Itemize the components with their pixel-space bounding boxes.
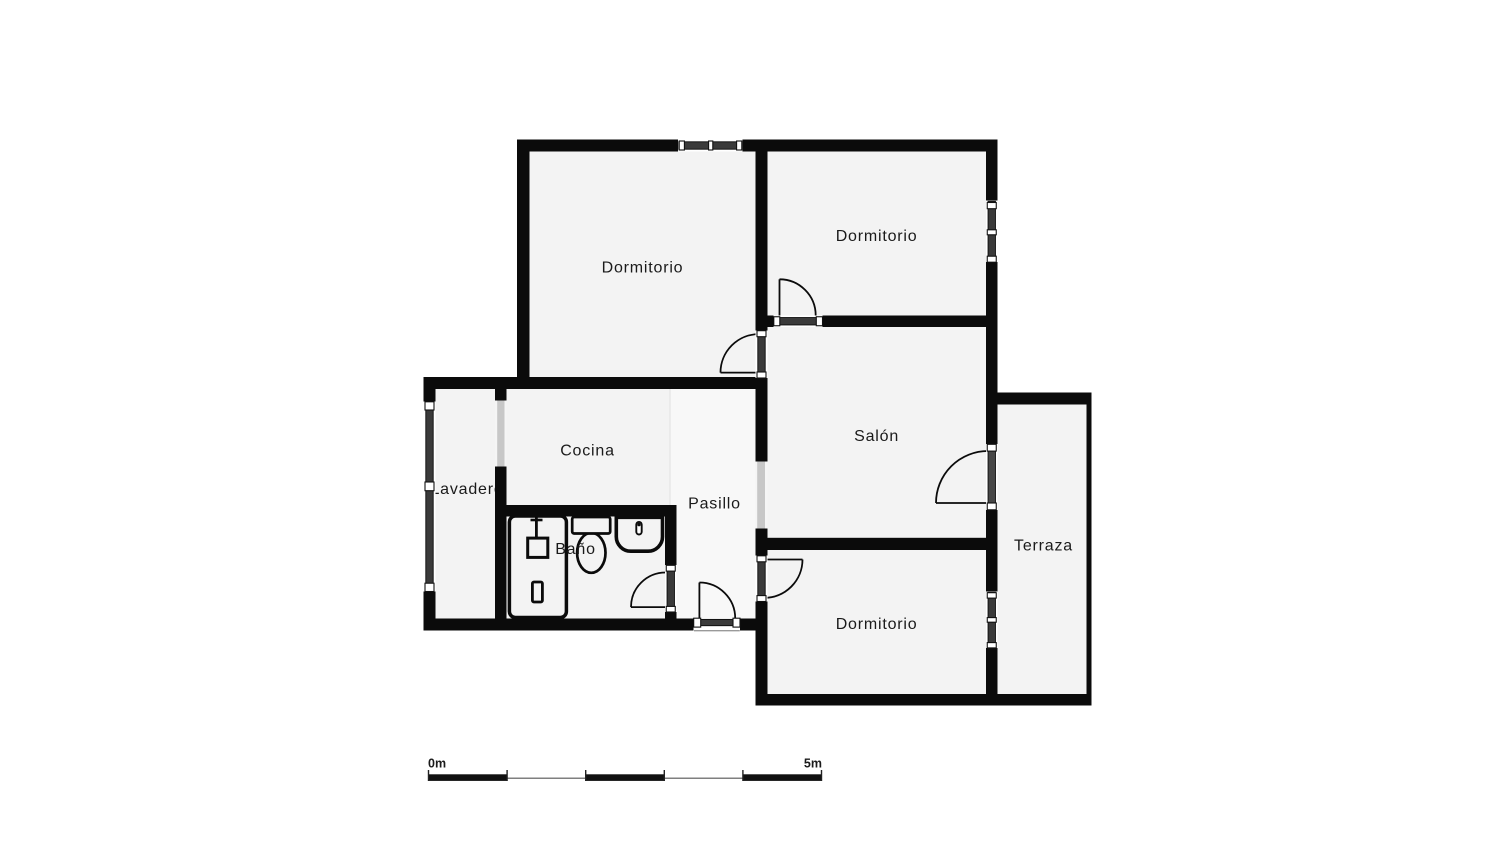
svg-text:5m: 5m — [804, 757, 822, 771]
svg-text:Cocina: Cocina — [560, 443, 615, 460]
svg-text:Dormitorio: Dormitorio — [836, 616, 918, 633]
svg-text:Salón: Salón — [854, 428, 899, 445]
svg-text:Lavadero: Lavadero — [430, 481, 503, 498]
svg-text:Terraza: Terraza — [1014, 537, 1073, 554]
svg-text:Dormitorio: Dormitorio — [836, 228, 918, 245]
svg-text:Pasillo: Pasillo — [688, 495, 741, 512]
svg-text:Baño: Baño — [555, 541, 596, 558]
svg-text:Dormitorio: Dormitorio — [602, 260, 684, 277]
svg-text:0m: 0m — [428, 757, 446, 771]
